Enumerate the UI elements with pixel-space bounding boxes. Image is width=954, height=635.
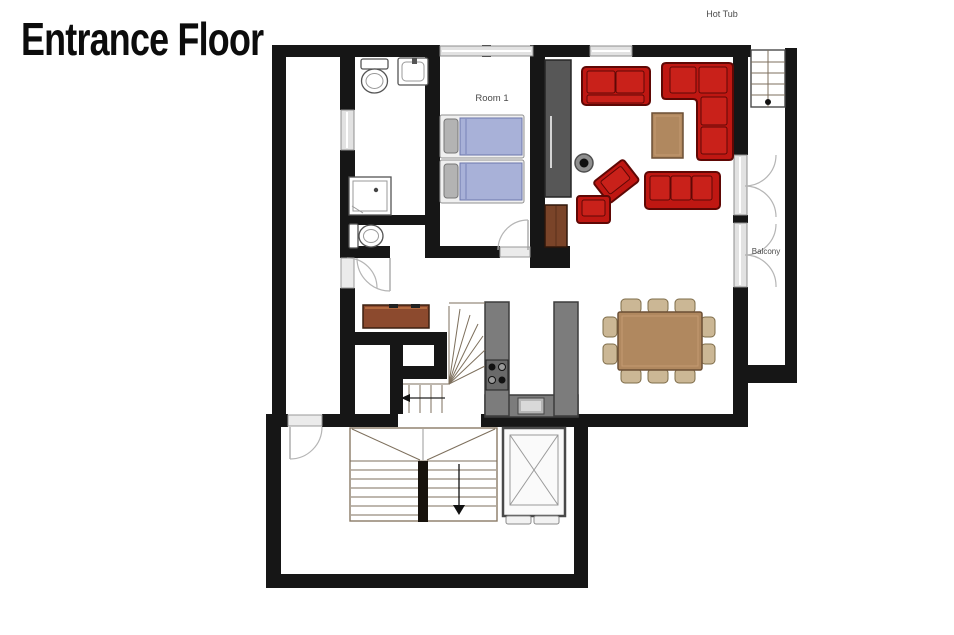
elevator-door: [506, 516, 531, 524]
sideboard: [363, 304, 429, 328]
lobby-door: [288, 415, 322, 459]
shower: [349, 177, 391, 215]
page-title: Entrance Floor: [21, 14, 264, 65]
sink-tap: [412, 58, 417, 64]
balcony: Balcony: [752, 247, 780, 256]
wood-stove: [575, 154, 593, 172]
balcony-label: Balcony: [752, 247, 780, 256]
wardrobe: [545, 60, 571, 197]
dining-table: [618, 312, 702, 370]
kitchen-counter-left: [485, 302, 509, 416]
kitchen-sink: [518, 398, 544, 414]
hot-tub-stairs: [751, 50, 785, 107]
bed-2: [440, 160, 524, 203]
toilet: [361, 59, 388, 93]
room1-label: Room 1: [475, 93, 508, 104]
sink: [398, 58, 428, 85]
room1-window: [440, 46, 533, 56]
wc-toilet: [349, 224, 383, 248]
floor-plan: Entrance Floor Hot Tub: [0, 0, 954, 635]
lobby: [350, 428, 565, 524]
bathroom-window: [341, 110, 354, 150]
hall-door: [341, 258, 377, 288]
lobby-stairs: [350, 428, 497, 522]
sofa-three-seat: [645, 172, 720, 209]
kitchen: [485, 302, 578, 417]
room-1: Room 1: [440, 93, 524, 203]
stair-divider-wall: [418, 461, 428, 522]
bed-1: [440, 115, 524, 158]
hot-tub-label: Hot Tub: [706, 9, 738, 19]
sofa-two-seat: [582, 67, 650, 105]
kitchen-counter-right: [554, 302, 578, 416]
living-room: [577, 63, 733, 223]
stair-newel-dot: [765, 99, 771, 105]
dining-area: [603, 299, 715, 383]
elevator: [503, 428, 565, 524]
armchair-small: [577, 196, 610, 223]
hob: [486, 360, 508, 390]
coffee-table: [652, 113, 683, 158]
shower-drain: [374, 188, 378, 192]
log-cabinet: [545, 205, 567, 247]
stairs-down-arrow: [401, 394, 445, 402]
elevator-door: [534, 516, 559, 524]
living-room-window: [590, 46, 632, 56]
room1-door: [498, 220, 530, 257]
floor-plan-page: Entrance Floor Hot Tub: [0, 0, 954, 635]
